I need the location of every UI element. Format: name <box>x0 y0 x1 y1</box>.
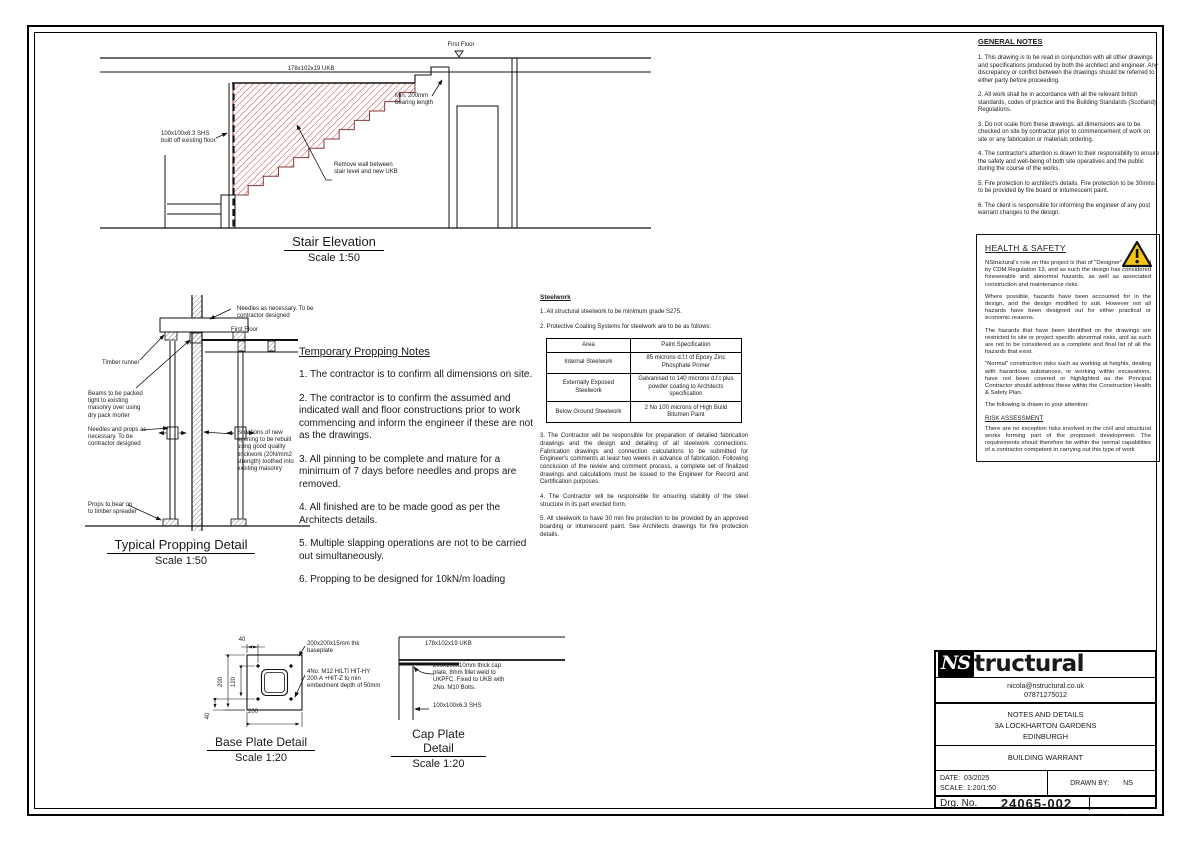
door-opening <box>457 106 498 228</box>
general-notes: GENERAL NOTES 1. This drawing is to be r… <box>978 37 1160 225</box>
stair-first-floor-label: First Floor <box>441 42 481 49</box>
company-logo: NStructural <box>936 652 1155 677</box>
table-cell: 85 microns d.f.t of Epoxy Zinc Phosphate… <box>630 352 741 373</box>
propping-props-bear-label: Props to bear on to timber spreader <box>88 502 138 516</box>
table-row: Internal Steelwork 85 microns d.f.t of E… <box>547 352 742 373</box>
table-cell: Below Ground Steelwork <box>547 402 631 423</box>
drawing-sheet: { "colors": { "hatch_red": "#c84545", "h… <box>0 0 1191 842</box>
general-note-1: 1. This drawing is to be read in conjunc… <box>978 55 1160 85</box>
drawn-by-label: DRAWN BY: <box>1070 780 1109 787</box>
base-dim-bottom: 200 <box>248 709 258 715</box>
contact-email: nicola@nstructural.co.uk <box>936 682 1155 691</box>
project-city: EDINBURGH <box>936 731 1155 742</box>
logo-ns: NS <box>938 652 974 677</box>
date-value: 03/2025 <box>964 775 989 782</box>
meta-row: DATE: 03/2025 SCALE: 1:20/1:50 DRAWN BY:… <box>936 770 1155 795</box>
propping-timber-runner-label: Timber runner <box>102 360 142 367</box>
risk-assessment-heading: RISK ASSESSMENT <box>985 415 1151 422</box>
cap-plate-title-text: Cap Plate Detail <box>391 727 486 757</box>
stair-remove-wall-label: Remove wall between stair level and new … <box>334 162 400 176</box>
cap-plate-label: 200x100x10mm thick cap plate, 8mm fillet… <box>433 663 511 692</box>
hs-paragraph-2: Where possible, hazards have been accoun… <box>985 294 1151 323</box>
steelwork-note-3: 3. The Contractor will be responsible fo… <box>540 433 748 487</box>
scale-value: 1:20/1:50 <box>967 785 996 792</box>
base-dim-inner: 120 <box>231 677 237 687</box>
steelwork-heading: Steelwork <box>540 294 748 301</box>
general-note-5: 5. Fire protection to architect's detail… <box>978 181 1160 196</box>
general-note-4: 4. The contractor's attention is drawn t… <box>978 151 1160 174</box>
propping-detail-scale: Scale 1:50 <box>101 555 261 567</box>
propping-notes-heading: Temporary Propping Notes <box>299 346 534 358</box>
base-dim-top: 40 <box>239 637 246 643</box>
propping-scuntions-label: Scuntions of new opening to be rebuilt u… <box>237 430 301 473</box>
hs-paragraph-3: The hazards that have been identified on… <box>985 328 1151 357</box>
propping-note-1: 1. The contractor is to confirm all dime… <box>299 369 534 382</box>
general-notes-heading: GENERAL NOTES <box>978 37 1160 46</box>
table-row: Below Ground Steelwork 2 No 100 microns … <box>547 402 742 423</box>
general-note-3: 3. Do not scale from these drawings. all… <box>978 122 1160 145</box>
project-address: 3A LOCKHARTON GARDENS <box>936 720 1155 731</box>
contact-row: nicola@nstructural.co.uk 07871275012 <box>936 677 1155 702</box>
table-header-area: Area <box>547 339 631 353</box>
steelwork-note-2: 2. Protective Coating Systems for steelw… <box>540 324 748 332</box>
wall-removal-hatch <box>233 83 415 195</box>
propping-first-floor-label: First Floor <box>231 327 263 334</box>
stair-shs-label: 100x100x6.3 SHS built off existing floor <box>161 131 219 145</box>
cap-plate-scale: Scale 1:20 <box>391 758 486 770</box>
propping-note-3: 3. All pinning to be complete and mature… <box>299 454 534 492</box>
table-cell: Galvanised to 140 microns d.f.t plus pow… <box>630 373 741 402</box>
base-plate-scale: Scale 1:20 <box>196 752 326 764</box>
propping-detail-title: Typical Propping Detail Scale 1:50 <box>101 536 261 567</box>
stair-bearing-label: Min. 200mm bearing length <box>395 93 435 107</box>
stage-label: BUILDING WARRANT <box>1008 753 1083 762</box>
base-plate-label: 200x200x15mm thk baseplate <box>307 641 379 655</box>
drg-number-label: Drg. No. <box>936 798 984 809</box>
stage-row: BUILDING WARRANT <box>936 745 1155 770</box>
propping-beams-packed-label: Beams to be packed tight to existing mas… <box>88 391 146 420</box>
table-cell: Externally Exposed Steelwork <box>547 373 631 402</box>
scale-label: SCALE: <box>940 785 965 792</box>
propping-note-6: 6. Propping to be designed for 10kN/m lo… <box>299 574 534 587</box>
hs-attention: The following is drawn to your attention… <box>985 402 1151 409</box>
risk-assessment-text: There are no exception risks involved in… <box>985 426 1151 455</box>
propping-note-5: 5. Multiple slapping operations are not … <box>299 538 534 563</box>
cap-plate-title: Cap Plate Detail Scale 1:20 <box>391 727 486 770</box>
general-note-6: 6. The client is responsible for informi… <box>978 203 1160 218</box>
date-label: DATE: <box>940 775 960 782</box>
drg-number-value: 24065-002 <box>984 796 1089 811</box>
propping-note-2: 2. The contractor is to confirm the assu… <box>299 393 534 443</box>
table-header-paint: Paint Specification <box>630 339 741 353</box>
title-block: NStructural nicola@nstructural.co.uk 078… <box>934 650 1157 809</box>
base-dim-bottom-left: 40 <box>205 713 211 720</box>
steelwork-note-4: 4. The Contractor will be responsible fo… <box>540 494 748 509</box>
steelwork-notes: Steelwork 1. All structural steelwork to… <box>540 294 748 546</box>
table-row: Externally Exposed Steelwork Galvanised … <box>547 373 742 402</box>
contact-phone: 07871275012 <box>936 691 1155 700</box>
cap-ukb-label: 178x102x19 UKB <box>425 641 487 648</box>
health-safety-box: HEALTH & SAFETY NStructural's role on th… <box>976 234 1160 462</box>
base-plate-title: Base Plate Detail Scale 1:20 <box>196 733 326 764</box>
temporary-propping-notes: Temporary Propping Notes 1. The contract… <box>299 346 534 598</box>
base-dim-left: 200 <box>218 677 224 687</box>
base-bolts-label: 4No. M12 HILTI HIT-HY 200-A +HIT-Z to mi… <box>307 669 383 691</box>
project-title: NOTES AND DETAILS <box>936 709 1155 720</box>
stair-elevation-title: Stair Elevation Scale 1:50 <box>254 233 414 264</box>
table-cell: 2 No 100 microns of High Build Bitumen P… <box>630 402 741 423</box>
revision-cell: _ <box>1089 797 1155 810</box>
logo-tructural: tructural <box>974 653 1084 676</box>
project-row: NOTES AND DETAILS 3A LOCKHARTON GARDENS … <box>936 702 1155 745</box>
drawn-by-cell: DRAWN BY: NS <box>1048 771 1155 795</box>
stair-ukb-label: 178x102x19 UKB <box>280 66 342 73</box>
steelwork-note-1: 1. All structural steelwork to be minimu… <box>540 309 748 317</box>
propping-note-4: 4. All finished are to be made good as p… <box>299 502 534 527</box>
stair-elevation-title-text: Stair Elevation <box>284 234 384 251</box>
drawing-number-row: Drg. No. 24065-002 _ <box>936 795 1155 810</box>
cap-shs-label: 100x100x6.3 SHS <box>433 703 495 710</box>
hs-paragraph-4: "Normal" construction risks such as work… <box>985 361 1151 397</box>
drawn-by-value: NS <box>1123 780 1133 787</box>
warning-triangle-icon <box>1121 240 1153 268</box>
propping-needles-top-label: Needles as necessary. To be contractor d… <box>237 306 319 320</box>
steelwork-note-5: 5. All steelwork to have 30 min fire pro… <box>540 516 748 539</box>
propping-detail-title-text: Typical Propping Detail <box>107 537 256 554</box>
propping-needles-props-label: Needles and props as necessary. To be co… <box>88 427 150 449</box>
general-note-2: 2. All work shall be in accordance with … <box>978 92 1160 115</box>
stair-elevation-scale: Scale 1:50 <box>254 252 414 264</box>
table-cell: Internal Steelwork <box>547 352 631 373</box>
date-scale-cell: DATE: 03/2025 SCALE: 1:20/1:50 <box>936 771 1048 795</box>
coating-systems-table: Area Paint Specification Internal Steelw… <box>546 338 742 423</box>
base-plate-title-text: Base Plate Detail <box>207 735 315 751</box>
